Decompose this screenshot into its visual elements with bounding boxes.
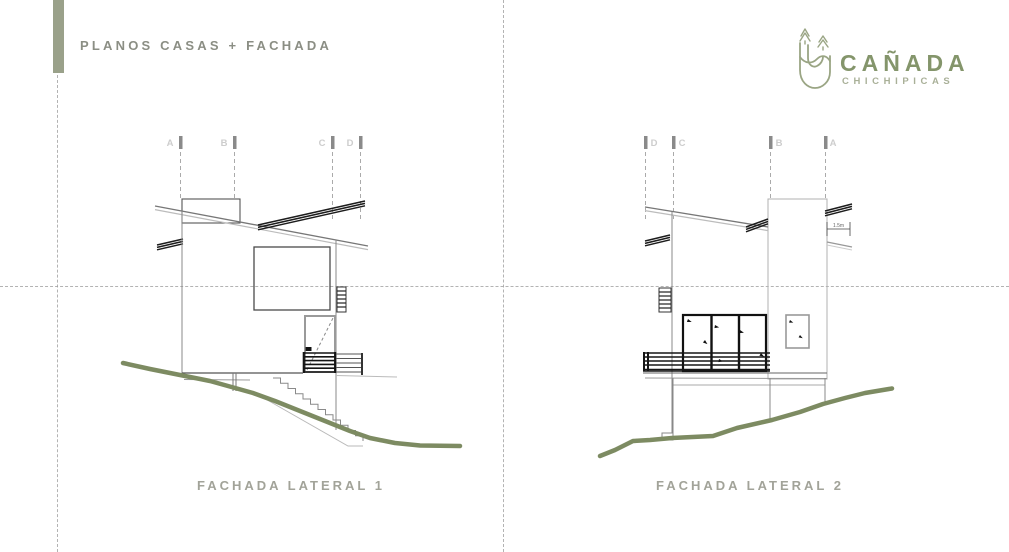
window-left	[254, 247, 330, 310]
roof-lines-right	[645, 204, 852, 250]
ladder-vent-right	[659, 288, 671, 312]
ladder-vent-left	[337, 287, 346, 312]
grid-label-c2: C	[679, 138, 686, 149]
window-right	[786, 315, 809, 348]
accent-bar	[53, 0, 64, 73]
stairs-left	[255, 378, 363, 446]
grid-label-b2: B	[776, 138, 783, 149]
grid-label-d2: D	[651, 138, 658, 149]
terrain-line-left	[123, 363, 460, 446]
left-margin-guide-line	[57, 75, 58, 552]
fachada-lateral-2-drawing: D C B A	[590, 125, 910, 460]
grid-label-d: D	[347, 138, 354, 149]
glass-doors	[683, 315, 766, 371]
center-guide-line	[503, 0, 504, 552]
page-title: PLANOS CASAS + FACHADA	[80, 38, 332, 53]
railing-light-left	[336, 353, 397, 377]
logo: CAÑADA CHICHIPICAS	[790, 24, 990, 94]
tower-volume	[768, 199, 827, 379]
clerestory-box	[182, 199, 240, 223]
terrain-line-right	[600, 389, 892, 457]
grid-markers-left: A B C D	[167, 136, 363, 222]
dimension-label: 1.5m	[833, 223, 844, 229]
railing-dark-left	[303, 352, 336, 373]
caption-fachada-lateral-2: FACHADA LATERAL 2	[590, 478, 910, 493]
grid-label-b: B	[221, 138, 228, 149]
floor-structure-right	[643, 373, 827, 433]
logo-subtitle: CHICHIPICAS	[842, 76, 954, 87]
caption-fachada-lateral-1: FACHADA LATERAL 1	[100, 478, 482, 493]
grid-label-c: C	[319, 138, 326, 149]
grid-label-a2: A	[830, 138, 837, 149]
fachada-lateral-1-drawing: A B C D	[100, 125, 480, 460]
logo-title: CAÑADA	[840, 50, 970, 77]
dimension-right: 1.5m	[827, 222, 850, 236]
grid-markers-right: D C B A	[644, 136, 837, 222]
plan-sheet: { "header": { "title": "PLANOS CASAS + F…	[0, 0, 1009, 552]
canada-trees-logo-icon	[793, 26, 837, 92]
terrace-railing	[643, 352, 770, 371]
grid-label-a: A	[167, 138, 174, 149]
